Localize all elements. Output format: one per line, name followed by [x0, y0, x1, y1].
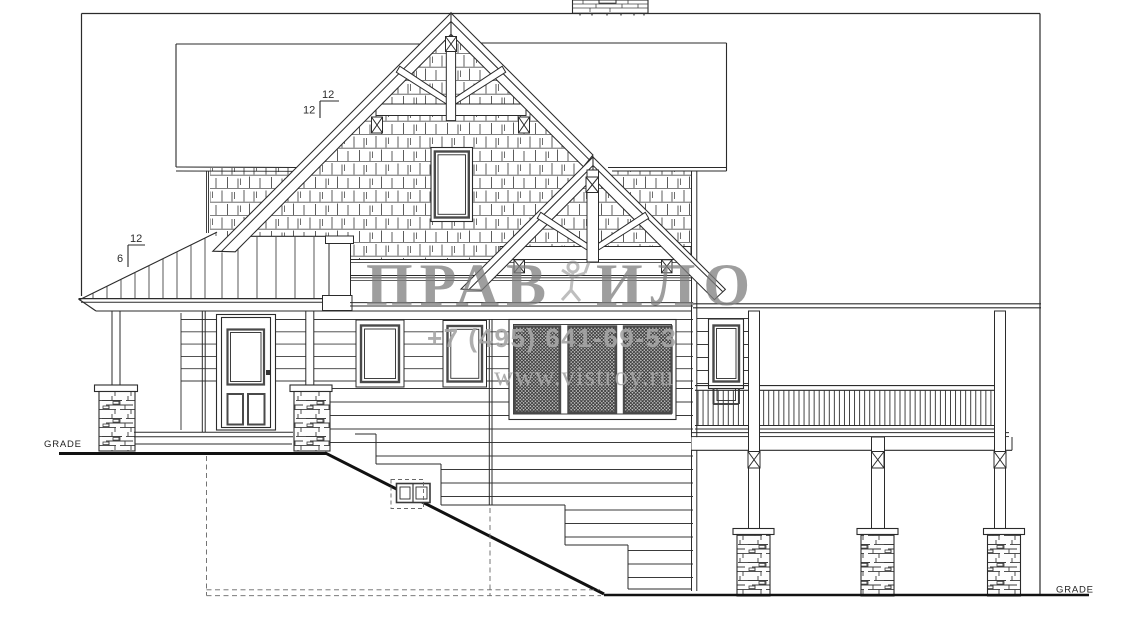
svg-text:ИЛО: ИЛО [596, 252, 758, 318]
svg-text:ПРАВ: ПРАВ [366, 252, 553, 318]
svg-text:6: 6 [117, 253, 123, 265]
svg-text:GRADE: GRADE [44, 439, 82, 450]
svg-text:+7 (495) 641-69-53: +7 (495) 641-69-53 [427, 323, 677, 353]
svg-text:www.vistroy.ru: www.vistroy.ru [494, 361, 674, 391]
svg-text:GRADE: GRADE [1056, 585, 1094, 596]
svg-text:12: 12 [303, 105, 315, 117]
svg-text:12: 12 [130, 233, 142, 245]
svg-text:12: 12 [322, 89, 334, 101]
